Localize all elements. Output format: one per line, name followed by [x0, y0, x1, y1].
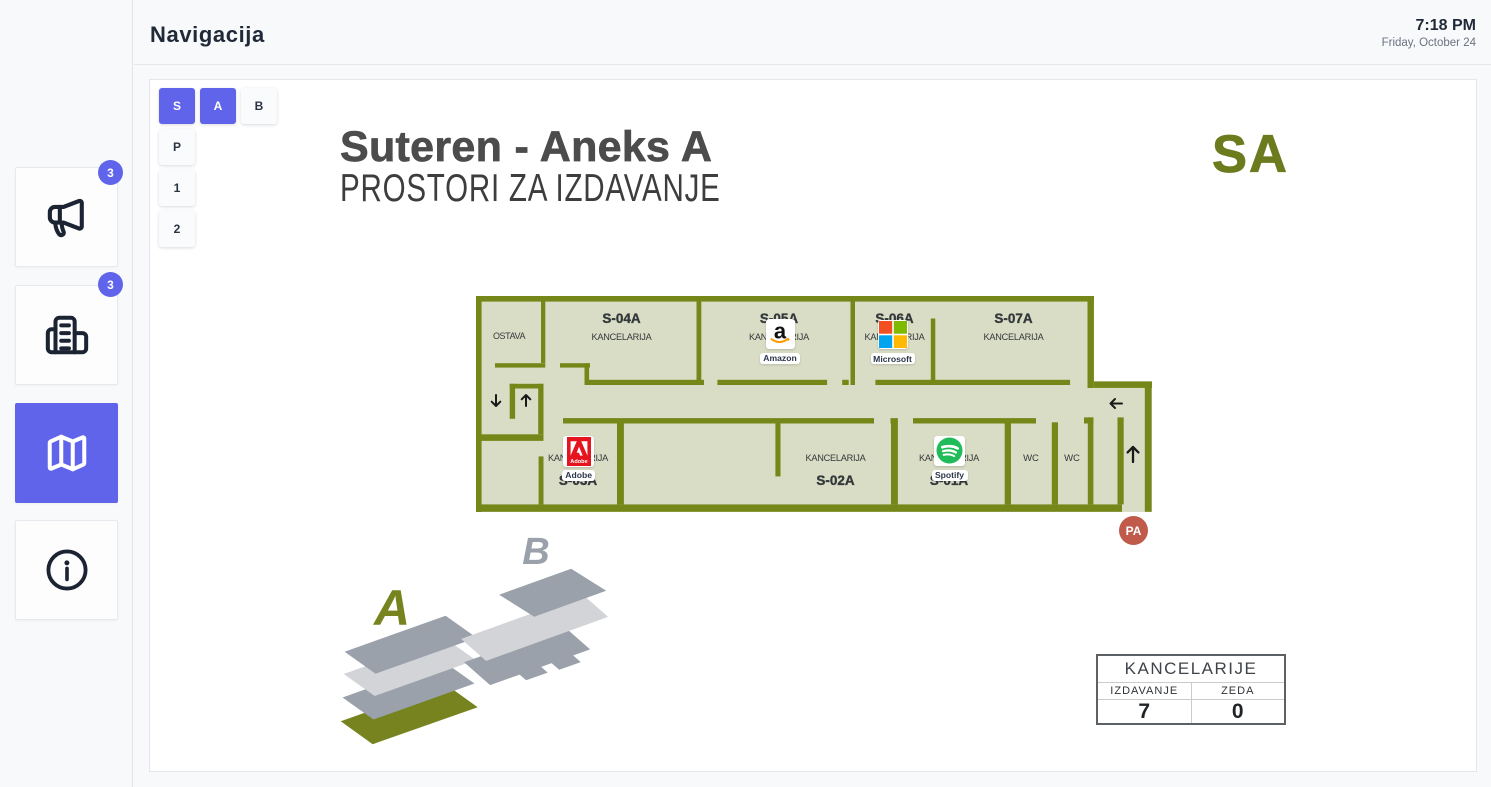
- svg-text:KANCELARIJA: KANCELARIJA: [983, 332, 1044, 342]
- svg-text:KANCELARIJA: KANCELARIJA: [591, 332, 652, 342]
- svg-text:Adobe: Adobe: [570, 459, 587, 465]
- svg-text:WC: WC: [1023, 453, 1039, 464]
- svg-text:KANCELARIJA: KANCELARIJA: [805, 453, 866, 463]
- svg-text:OSTAVA: OSTAVA: [493, 331, 526, 341]
- svg-text:S-07A: S-07A: [994, 311, 1033, 326]
- svg-text:A: A: [372, 580, 410, 636]
- svg-text:WC: WC: [1064, 453, 1080, 464]
- svg-text:S-04A: S-04A: [602, 311, 641, 326]
- svg-text:S-02A: S-02A: [816, 473, 855, 488]
- svg-text:B: B: [522, 531, 549, 573]
